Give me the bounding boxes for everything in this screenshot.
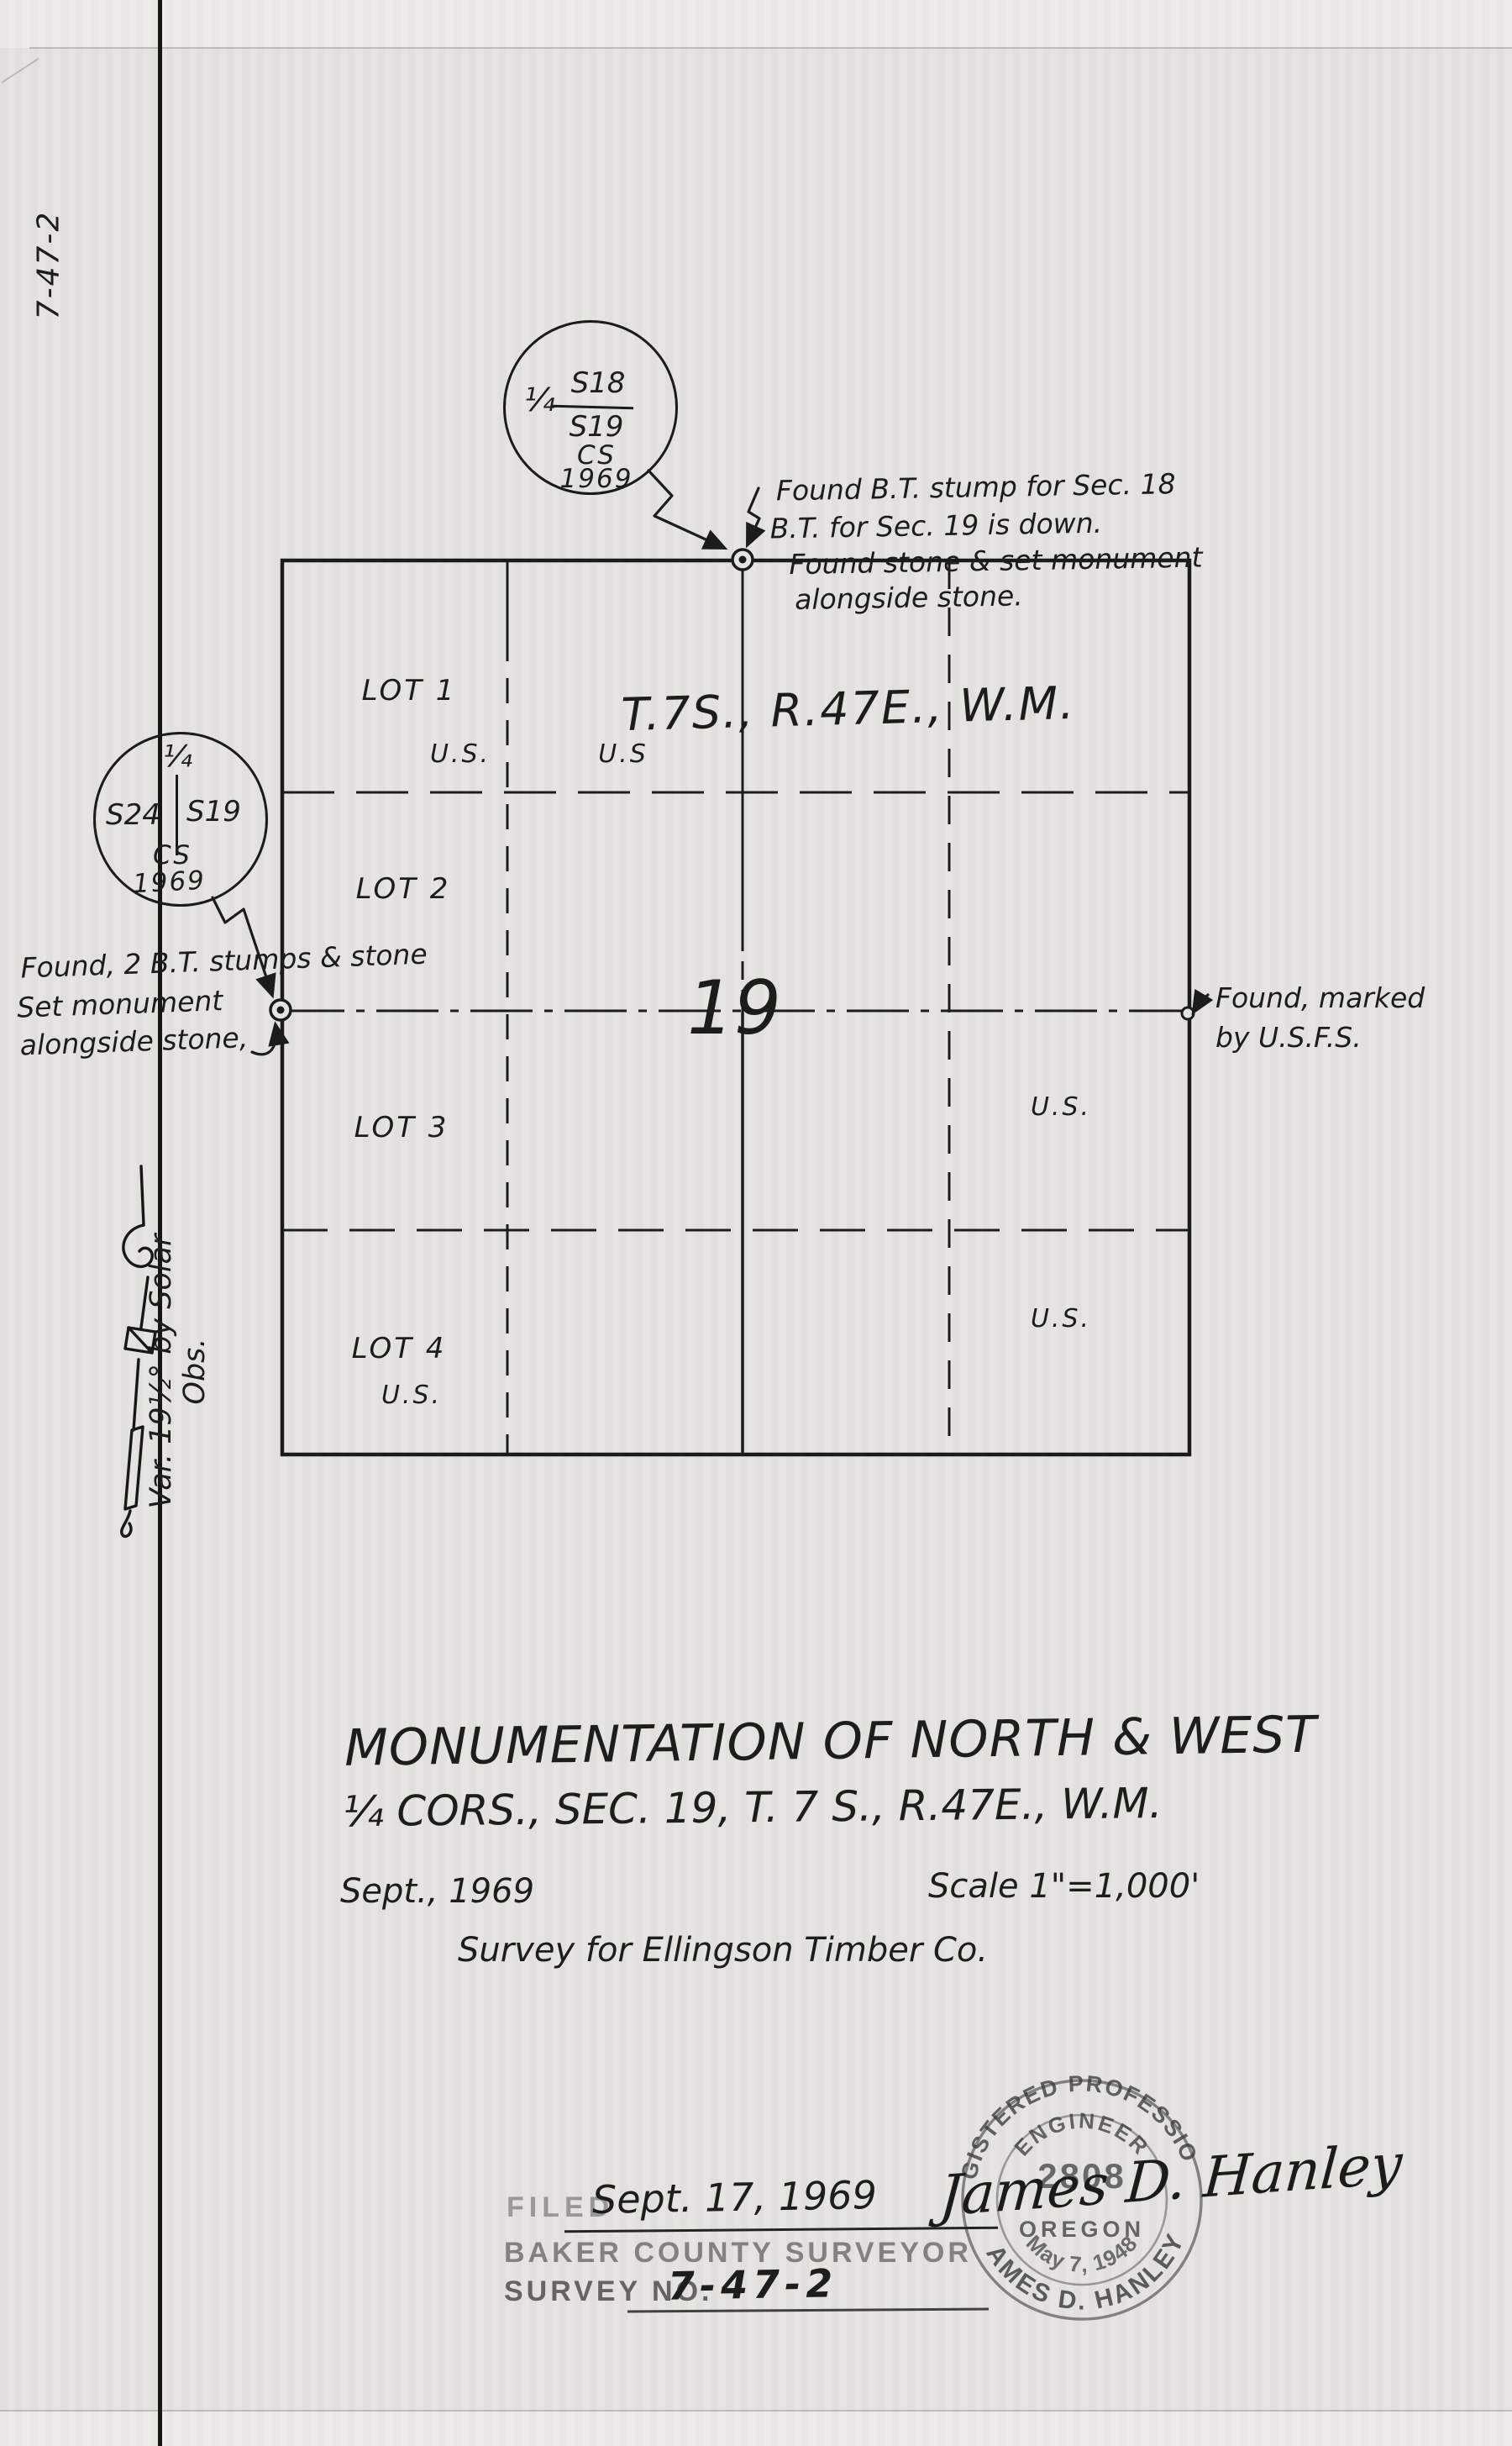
us-label-nw: U.S <box>598 739 648 769</box>
lot1-label: LOT 1 <box>362 674 457 707</box>
client-note: Survey for Ellingson Timber Co. <box>458 1931 988 1970</box>
us-label-lot1: U.S. <box>430 739 491 769</box>
west-corner-note: Found, 2 B.T. stumps & stone Set monumen… <box>20 938 431 1062</box>
section-under-label: S19 <box>554 410 638 444</box>
us-label-east-upper: U.S. <box>1031 1092 1091 1122</box>
section-over-label: S18 <box>556 366 640 400</box>
survey-no-handwritten: 7-47-2 <box>668 2260 838 2309</box>
north-quarter-monument-icon <box>732 550 753 570</box>
plat-drawing: REGISTERED PROFESSIONAL ENGINEER May 7, … <box>0 0 1512 2446</box>
note-line: by U.S.F.S. <box>1215 1021 1425 1054</box>
north-corner-note: Found B.T. stump for Sec. 18 B.T. for Se… <box>776 467 1204 617</box>
lot3-label: LOT 3 <box>354 1111 449 1144</box>
us-label-east-lower: U.S. <box>1031 1304 1091 1333</box>
north-circle-leader-arrow <box>648 471 724 548</box>
east-note-leader-hook <box>1194 995 1208 1012</box>
note-line: B.T. for Sec. 19 is down. <box>769 505 1202 545</box>
section-right-label: S19 <box>186 795 241 828</box>
north-corner-record-circle: ¼ S18 S19 CS 1969 <box>503 320 678 495</box>
section-left-label: S24 <box>106 798 160 832</box>
section-number-label: 19 <box>687 965 781 1051</box>
survey-date: Sept., 1969 <box>340 1872 534 1911</box>
lot4-label: LOT 4 <box>352 1332 447 1365</box>
note-line: Found B.T. stump for Sec. 18 <box>776 467 1202 508</box>
note-line: Found stone & set monument <box>789 541 1203 581</box>
quarter-fraction-label: ¼ <box>524 381 555 418</box>
north-arrow <box>122 1166 155 1536</box>
scale-note: Scale 1"=1,000' <box>928 1867 1200 1906</box>
west-corner-record-circle: ¼ S24 S19 CS 1969 <box>93 732 268 907</box>
note-line: Found, marked <box>1215 981 1425 1014</box>
survey-plat-sheet: 7-47-2 Var. 19½° by Solar Obs. <box>0 0 1512 2446</box>
title-line-2: ¼ CORS., SEC. 19, T. 7 S., R.47E., W.M. <box>343 1779 1184 1836</box>
north-note-leader-bolt <box>748 488 759 544</box>
filed-date-handwritten: Sept. 17, 1969 <box>592 2172 878 2222</box>
east-quarter-monument-icon <box>1182 1007 1194 1019</box>
us-label-lot4: U.S. <box>381 1381 442 1410</box>
quarter-fraction-label: ¼ <box>163 739 192 774</box>
fraction-bar <box>553 405 633 410</box>
corner-year-label: 1969 <box>548 464 645 494</box>
east-corner-note: Found, marked by U.S.F.S. <box>1215 981 1425 1054</box>
corner-year-label: 1969 <box>132 865 207 899</box>
lot2-label: LOT 2 <box>356 872 451 906</box>
